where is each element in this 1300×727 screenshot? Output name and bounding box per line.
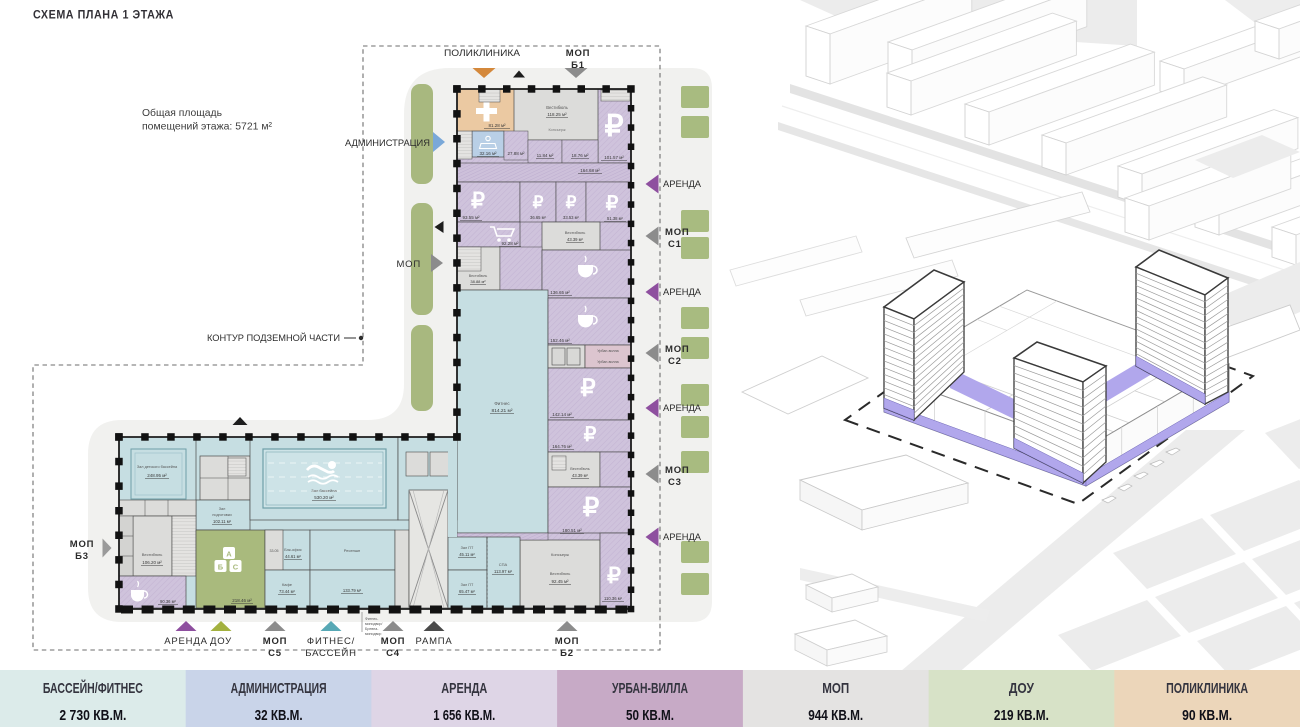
svg-text:814.21 м²: 814.21 м²	[492, 408, 513, 414]
svg-text:50 КВ.М.: 50 КВ.М.	[626, 707, 674, 724]
svg-text:МОП: МОП	[566, 48, 591, 59]
svg-text:₽: ₽	[566, 193, 577, 212]
svg-text:101.57 м²: 101.57 м²	[604, 155, 624, 160]
svg-text:МОП: МОП	[263, 636, 288, 647]
svg-text:18.76 м²: 18.76 м²	[571, 153, 589, 158]
svg-text:С5: С5	[268, 648, 282, 659]
svg-text:АРЕНДА: АРЕНДА	[663, 403, 702, 414]
svg-text:₽: ₽	[533, 193, 544, 212]
svg-text:помещений этажа: 5721 м²: помещений этажа: 5721 м²	[142, 121, 272, 133]
svg-text:Зал бассейна: Зал бассейна	[311, 488, 337, 493]
svg-text:45.11 м²: 45.11 м²	[459, 552, 475, 557]
svg-text:ДОУ: ДОУ	[210, 636, 232, 647]
svg-text:С4: С4	[386, 648, 400, 659]
svg-text:152.46 м²: 152.46 м²	[550, 338, 570, 343]
svg-text:219 КВ.М.: 219 КВ.М.	[994, 707, 1049, 724]
svg-text:164.76 м²: 164.76 м²	[552, 444, 572, 449]
svg-text:106.20 м²: 106.20 м²	[142, 560, 162, 565]
svg-text:33.53 м²: 33.53 м²	[563, 215, 580, 220]
svg-text:₽: ₽	[583, 492, 600, 522]
svg-text:Бревна-: Бревна-	[365, 627, 379, 631]
svg-text:33.05: 33.05	[270, 549, 279, 553]
svg-text:32 КВ.М.: 32 КВ.М.	[255, 707, 303, 724]
svg-text:218.46 м²: 218.46 м²	[232, 598, 252, 603]
svg-text:11.84 м²: 11.84 м²	[537, 153, 554, 158]
svg-text:МОП: МОП	[381, 636, 406, 647]
svg-text:₽: ₽	[580, 375, 595, 402]
svg-text:Б3: Б3	[75, 551, 89, 562]
svg-text:Вестибюль: Вестибюль	[142, 552, 163, 557]
svg-text:90 КВ.М.: 90 КВ.М.	[1182, 707, 1232, 724]
svg-text:73.44 м²: 73.44 м²	[279, 589, 296, 594]
svg-text:Ресепшн: Ресепшн	[344, 548, 361, 553]
svg-text:51.38 м²: 51.38 м²	[607, 216, 624, 221]
svg-text:113.97 м²: 113.97 м²	[494, 569, 513, 574]
svg-text:Урбан-вилла: Урбан-вилла	[597, 349, 618, 353]
svg-text:Вестибюль: Вестибюль	[570, 467, 590, 471]
svg-text:₽: ₽	[471, 188, 485, 213]
svg-text:УРБАН-ВИЛЛА: УРБАН-ВИЛЛА	[612, 680, 688, 697]
svg-text:43.39 м²: 43.39 м²	[572, 473, 589, 478]
svg-text:27.88 м²: 27.88 м²	[507, 151, 525, 156]
svg-text:Зал: Зал	[219, 507, 226, 511]
svg-text:1 656 КВ.М.: 1 656 КВ.М.	[433, 707, 495, 724]
svg-text:Бэк-офис: Бэк-офис	[284, 547, 302, 552]
svg-text:МОП: МОП	[665, 227, 690, 238]
svg-text:АРЕНДА: АРЕНДА	[663, 179, 702, 190]
svg-text:Общая площадь: Общая площадь	[142, 107, 223, 119]
svg-text:Зал детского бассейна: Зал детского бассейна	[137, 465, 178, 469]
svg-text:БАССЕЙН: БАССЕЙН	[305, 647, 357, 659]
svg-text:КОНТУР ПОДЗЕМНОЙ ЧАСТИ: КОНТУР ПОДЗЕМНОЙ ЧАСТИ	[207, 332, 340, 343]
svg-text:Фитнес-: Фитнес-	[365, 617, 379, 621]
svg-text:минидвор/: минидвор/	[365, 622, 382, 626]
svg-text:164.68 м²: 164.68 м²	[580, 168, 600, 173]
svg-text:₽: ₽	[606, 193, 619, 215]
svg-text:МОП: МОП	[70, 539, 95, 550]
svg-text:₽: ₽	[607, 563, 621, 588]
svg-text:ФИТНЕС/: ФИТНЕС/	[307, 636, 355, 647]
svg-text:530.20 м²: 530.20 м²	[314, 495, 334, 500]
svg-text:92.45 м²: 92.45 м²	[551, 579, 569, 584]
svg-text:С1: С1	[668, 239, 682, 250]
svg-text:180.51 м²: 180.51 м²	[562, 528, 582, 533]
svg-text:Б2: Б2	[560, 648, 574, 659]
svg-text:АРЕНДА: АРЕНДА	[164, 636, 207, 647]
svg-text:МОП: МОП	[665, 465, 690, 476]
svg-text:АДМИНИСТРАЦИЯ: АДМИНИСТРАЦИЯ	[345, 138, 430, 149]
svg-text:81.28 м²: 81.28 м²	[488, 123, 506, 128]
svg-text:С: С	[233, 563, 239, 572]
svg-text:102.11 м²: 102.11 м²	[213, 519, 232, 524]
svg-text:СПА: СПА	[499, 562, 508, 567]
svg-text:Фитнес: Фитнес	[494, 401, 510, 406]
svg-text:Консьерж: Консьерж	[551, 552, 569, 557]
svg-text:248.95 м²: 248.95 м²	[147, 473, 167, 478]
svg-text:подготовки: подготовки	[212, 513, 231, 517]
svg-text:142.14 м²: 142.14 м²	[552, 412, 572, 417]
svg-text:С3: С3	[668, 477, 682, 488]
svg-text:БАССЕЙН/ФИТНЕС: БАССЕЙН/ФИТНЕС	[43, 679, 143, 697]
svg-text:44.61 м²: 44.61 м²	[285, 554, 302, 559]
svg-text:Кафе: Кафе	[282, 582, 293, 587]
svg-text:110.36 м²: 110.36 м²	[604, 596, 623, 601]
svg-text:32.16 м²: 32.16 м²	[479, 151, 497, 156]
svg-text:43.39 м²: 43.39 м²	[567, 237, 584, 242]
svg-text:ПОЛИКЛИНИКА: ПОЛИКЛИНИКА	[1166, 680, 1248, 697]
svg-text:118.25 м²: 118.25 м²	[547, 112, 567, 117]
svg-text:38.88 м²: 38.88 м²	[470, 279, 486, 284]
svg-text:₽: ₽	[584, 424, 597, 446]
svg-text:Б: Б	[218, 563, 224, 572]
svg-text:136.65 м²: 136.65 м²	[550, 290, 570, 295]
svg-text:Урбан-вилла: Урбан-вилла	[597, 360, 618, 364]
svg-text:944 КВ.М.: 944 КВ.М.	[808, 707, 863, 724]
svg-text:133.79 м²: 133.79 м²	[343, 588, 362, 593]
svg-text:минидвор: минидвор	[365, 632, 381, 636]
svg-text:МОП: МОП	[822, 680, 849, 697]
svg-text:АРЕНДА: АРЕНДА	[663, 287, 702, 298]
svg-text:2 730 КВ.М.: 2 730 КВ.М.	[59, 707, 126, 724]
svg-text:МОП: МОП	[555, 636, 580, 647]
svg-text:А: А	[226, 550, 232, 559]
svg-text:МОП: МОП	[396, 259, 421, 270]
svg-text:92.28 м²: 92.28 м²	[501, 241, 519, 246]
svg-text:ДОУ: ДОУ	[1009, 680, 1035, 697]
svg-text:Зал ПТ: Зал ПТ	[461, 546, 474, 550]
svg-text:СХЕМА ПЛАНА 1 ЭТАЖА: СХЕМА ПЛАНА 1 ЭТАЖА	[33, 10, 174, 22]
svg-text:36.65 м²: 36.65 м²	[530, 215, 547, 220]
svg-text:Консьерж: Консьерж	[548, 128, 566, 132]
svg-text:АРЕНДА: АРЕНДА	[441, 680, 487, 697]
svg-text:93.55 м²: 93.55 м²	[462, 215, 480, 220]
svg-text:Вестибюль: Вестибюль	[546, 105, 568, 110]
svg-text:₽: ₽	[604, 110, 623, 143]
svg-text:АДМИНИСТРАЦИЯ: АДМИНИСТРАЦИЯ	[231, 680, 327, 697]
svg-text:МОП: МОП	[665, 344, 690, 355]
svg-text:Вестибюль: Вестибюль	[550, 571, 571, 576]
svg-text:Вестибюль: Вестибюль	[469, 274, 488, 278]
svg-text:С2: С2	[668, 356, 682, 367]
svg-text:РАМПА: РАМПА	[415, 636, 452, 647]
svg-text:65.47 м²: 65.47 м²	[459, 589, 476, 594]
svg-text:90.36 м²: 90.36 м²	[160, 599, 177, 604]
svg-text:Вестибюль: Вестибюль	[565, 230, 586, 235]
svg-text:АРЕНДА: АРЕНДА	[663, 532, 702, 543]
svg-text:ПОЛИКЛИНИКА: ПОЛИКЛИНИКА	[444, 48, 521, 59]
svg-text:Зал ПТ: Зал ПТ	[461, 583, 474, 587]
